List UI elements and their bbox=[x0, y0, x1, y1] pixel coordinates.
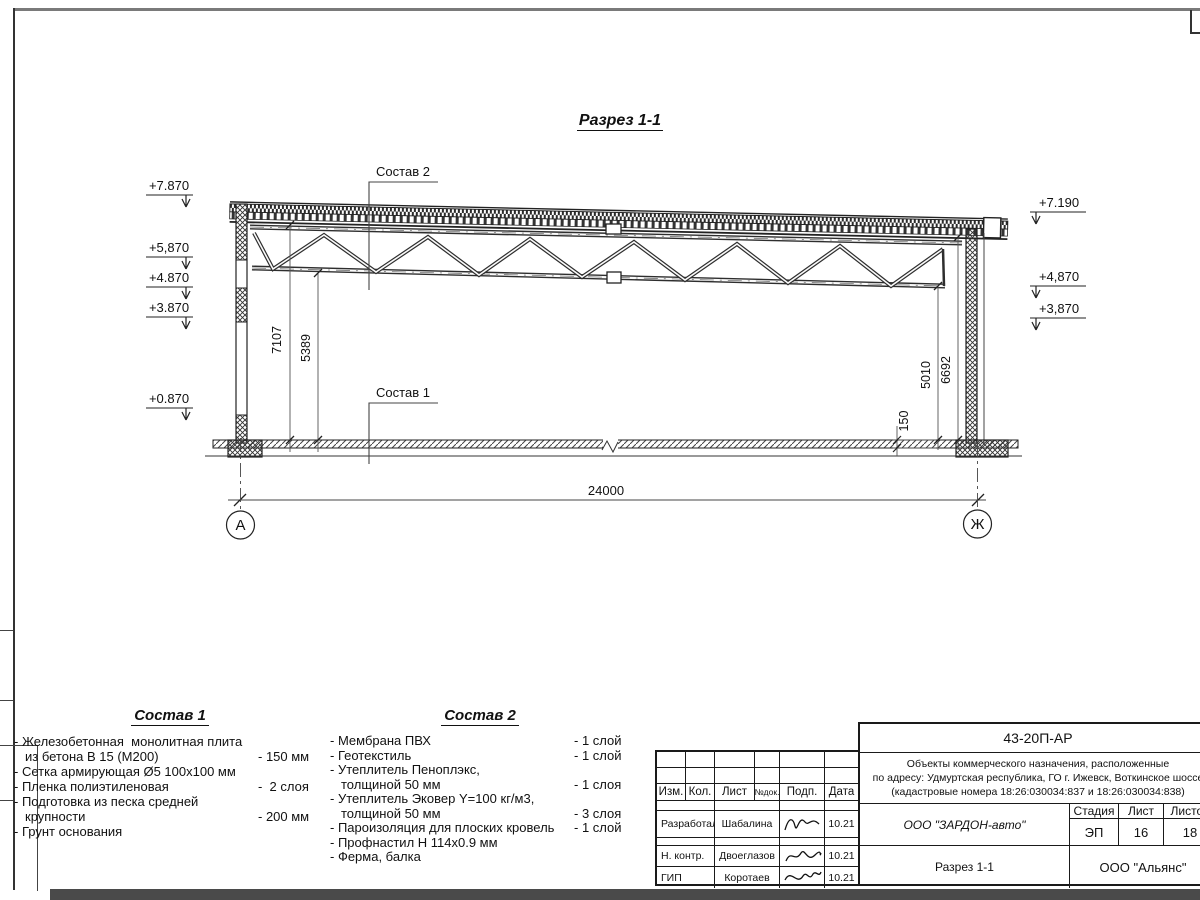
list-item: - Ферма, балка bbox=[330, 850, 630, 865]
truss-splice-plate bbox=[606, 224, 621, 234]
list-item: - Подготовка из песка средней bbox=[14, 794, 326, 809]
sostav1-title: Состав 1 bbox=[14, 708, 326, 723]
col-header-list: Лист bbox=[715, 784, 755, 800]
titleblock-left-table: Изм. Кол. Лист №док. Подп. Дата Разработ… bbox=[655, 750, 858, 886]
svg-text:+3.870: +3.870 bbox=[149, 300, 189, 315]
foundation-left bbox=[228, 440, 262, 457]
document-number: 43-20П-АР bbox=[860, 724, 1200, 753]
list-item: толщиной 50 мм- 3 слоя bbox=[330, 807, 630, 822]
sostav2-list: Состав 2 - Мембрана ПВХ- 1 слой - Геотек… bbox=[330, 708, 630, 865]
elevation-mark: +7.870 bbox=[146, 178, 193, 207]
list-item: - Утеплитель Пеноплэкс, bbox=[330, 763, 630, 778]
date-gip: 10.21 bbox=[825, 867, 858, 888]
signature-icon bbox=[781, 847, 823, 866]
leader-label-sostav2: Состав 2 bbox=[376, 164, 430, 179]
signature-icon bbox=[781, 812, 823, 836]
list-item: - Профнастил Н 114х0.9 мм bbox=[330, 836, 630, 851]
svg-text:+7.870: +7.870 bbox=[149, 178, 189, 193]
dim-7107: 7107 bbox=[270, 326, 284, 354]
col-header-podp: Подп. bbox=[780, 784, 825, 800]
list-item: - Утеплитель Эковер Y=100 кг/м3, bbox=[330, 792, 630, 807]
name-gip: Коротаев bbox=[715, 867, 780, 888]
elevation-mark: +7.190 bbox=[1030, 195, 1086, 224]
signature-ncontrol bbox=[780, 846, 825, 866]
signature-icon bbox=[781, 868, 823, 887]
svg-text:+4,870: +4,870 bbox=[1039, 269, 1079, 284]
elevation-marks-left: +7.870 +5,870 +4.870 +3.870 +0.870 bbox=[146, 178, 193, 420]
date-developed: 10.21 bbox=[825, 811, 858, 837]
signature-gip bbox=[780, 867, 825, 888]
elevation-mark: +3.870 bbox=[146, 300, 193, 329]
project-description: Объекты коммерческого назначения, распол… bbox=[860, 753, 1200, 804]
list-item: - Пленка полиэтиленовая- 2 слоя bbox=[14, 779, 326, 794]
svg-text:+5,870: +5,870 bbox=[149, 240, 189, 255]
list-item: - Железобетонная монолитная плита bbox=[14, 734, 326, 749]
roof-end-cap bbox=[983, 218, 1000, 238]
list-item: из бетона В 15 (М200)- 150 мм bbox=[14, 749, 326, 764]
sheets-value: 18 bbox=[1164, 819, 1200, 845]
floor-slab bbox=[205, 438, 1022, 457]
sheet-value: 16 bbox=[1119, 819, 1164, 845]
axis-letter-left: А bbox=[235, 517, 245, 534]
sheet-name: Разрез 1-1 bbox=[860, 846, 1070, 888]
truss-splice-plate bbox=[607, 272, 621, 283]
role-ncontrol: Н. контр. bbox=[657, 846, 715, 866]
signature-developed bbox=[780, 811, 825, 837]
stage-value: ЭП bbox=[1070, 819, 1119, 845]
dim-6692: 6692 bbox=[939, 356, 953, 384]
col-header-data: Дата bbox=[825, 784, 858, 800]
name-ncontrol: Двоеглазов bbox=[715, 846, 780, 866]
role-gip: ГИП bbox=[657, 867, 715, 888]
dim-150: 150 bbox=[897, 411, 911, 432]
dim-24000: 24000 bbox=[588, 483, 624, 498]
list-item: - Грунт основания bbox=[14, 824, 326, 839]
elevation-mark: +3,870 bbox=[1030, 301, 1086, 330]
stage-label: Стадия bbox=[1070, 804, 1119, 818]
roof-truss bbox=[250, 224, 962, 286]
list-item: - Пароизоляция для плоских кровель- 1 сл… bbox=[330, 821, 630, 836]
col-header-ndok: №док. bbox=[755, 784, 780, 800]
elevation-mark: +5,870 bbox=[146, 240, 193, 269]
col-header-kol: Кол. bbox=[686, 784, 715, 800]
role-developed: Разработал bbox=[657, 811, 715, 837]
customer-company: ООО "ЗАРДОН-авто" bbox=[860, 804, 1070, 845]
svg-text:+7.190: +7.190 bbox=[1039, 195, 1079, 210]
titleblock-right: 43-20П-АР Объекты коммерческого назначен… bbox=[858, 722, 1200, 886]
list-item: - Геотекстиль- 1 слой bbox=[330, 749, 630, 764]
sheet-label: Лист bbox=[1119, 804, 1164, 818]
dim-5389: 5389 bbox=[299, 334, 313, 362]
elevation-marks-right: +7.190 +4,870 +3,870 bbox=[1030, 195, 1086, 330]
column-right bbox=[966, 229, 977, 443]
svg-text:+3,870: +3,870 bbox=[1039, 301, 1079, 316]
list-item: - Мембрана ПВХ- 1 слой bbox=[330, 734, 630, 749]
dim-5010: 5010 bbox=[919, 361, 933, 389]
elevation-mark: +4,870 bbox=[1030, 269, 1086, 298]
elevation-mark: +0.870 bbox=[146, 391, 193, 420]
name-developed: Шабалина bbox=[715, 811, 780, 837]
list-item: крупности- 200 мм bbox=[14, 809, 326, 824]
sostav2-title: Состав 2 bbox=[330, 708, 630, 723]
elevation-mark: +4.870 bbox=[146, 270, 193, 299]
sheets-label: Листов bbox=[1164, 804, 1200, 818]
list-item: - Сетка армирующая Ø5 100х100 мм bbox=[14, 764, 326, 779]
drawing-sheet: Разрез 1-1 bbox=[0, 0, 1200, 900]
sostav1-list: Состав 1 - Железобетонная монолитная пли… bbox=[14, 708, 326, 839]
design-org: ООО "Альянс" bbox=[1070, 846, 1200, 888]
foundation-right bbox=[956, 440, 1008, 457]
svg-text:+4.870: +4.870 bbox=[149, 270, 189, 285]
axis-letter-right: Ж bbox=[971, 516, 985, 533]
col-header-izm: Изм. bbox=[657, 784, 686, 800]
date-ncontrol: 10.21 bbox=[825, 846, 858, 866]
span-dimension: 24000 bbox=[228, 483, 986, 506]
leader-label-sostav1: Состав 1 bbox=[376, 385, 430, 400]
list-item: толщиной 50 мм- 1 слоя bbox=[330, 778, 630, 793]
svg-text:+0.870: +0.870 bbox=[149, 391, 189, 406]
